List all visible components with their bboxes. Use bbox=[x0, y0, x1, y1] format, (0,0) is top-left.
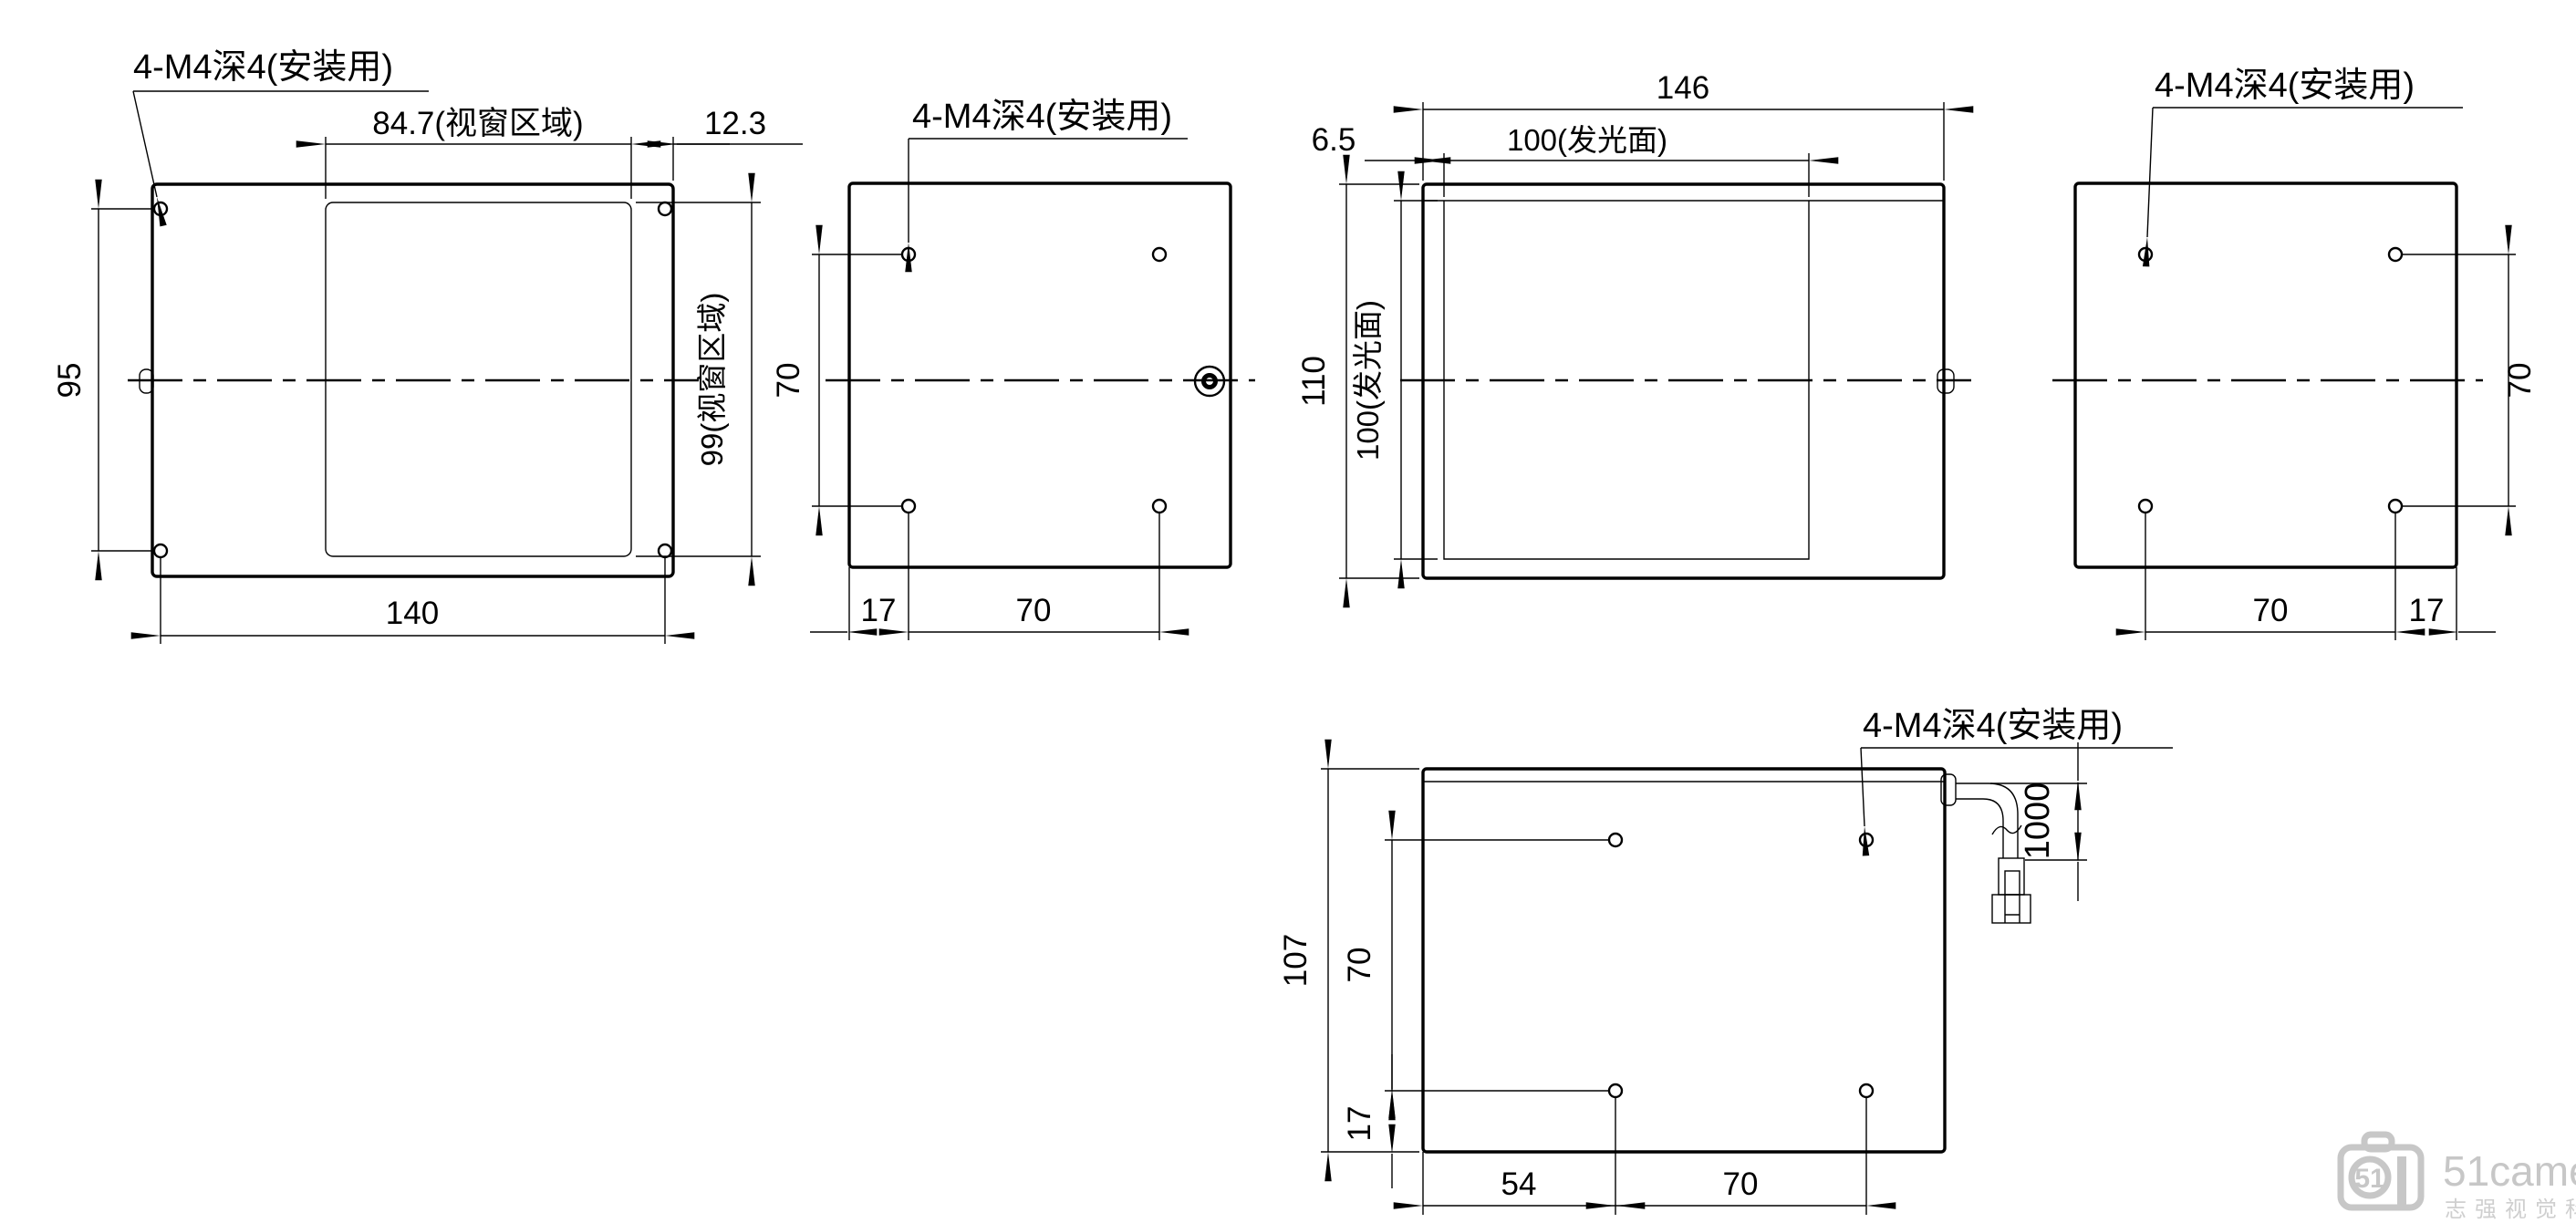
body-outline bbox=[1423, 769, 1945, 1152]
mounting-hole bbox=[1153, 500, 1166, 513]
dim-text-hole-spacing-v: 70 bbox=[2502, 363, 2538, 399]
mounting-hole bbox=[659, 202, 671, 215]
front-view-b: 146 100(发光面) 6.5 110 100(发光面) bbox=[1296, 70, 1971, 578]
mounting-hole bbox=[902, 500, 915, 513]
extension-lines bbox=[812, 139, 1188, 640]
extension-lines bbox=[1339, 102, 1944, 578]
dim-text-left: 54 bbox=[1501, 1166, 1537, 1202]
mounting-hole bbox=[1860, 834, 1873, 846]
dim-text-hole-spacing-h: 70 bbox=[1723, 1166, 1759, 1202]
front-view-a: 4-M4深4(安装用) 84.7(视窗区域) 12.3 95 140 99(视窗… bbox=[52, 48, 803, 644]
cable-connector bbox=[1992, 858, 2031, 923]
dim-text-hole-spacing: 95 bbox=[52, 363, 88, 399]
mounting-hole bbox=[1609, 1084, 1622, 1097]
mounting-hole bbox=[154, 202, 167, 215]
dim-text-width: 140 bbox=[386, 596, 439, 631]
body-outline bbox=[849, 183, 1231, 567]
connector-detail bbox=[2005, 895, 2020, 923]
connector-latch bbox=[2005, 871, 2020, 895]
connector-head bbox=[1992, 895, 2031, 923]
dim-text-cable-length: 1000 bbox=[2019, 783, 2057, 860]
dim-text-window-width: 84.7(视窗区域) bbox=[372, 106, 583, 141]
dim-text-glow-width: 100(发光面) bbox=[1507, 123, 1667, 157]
dim-text-margin: 12.3 bbox=[704, 106, 766, 141]
mounting-hole bbox=[2139, 248, 2152, 261]
mounting-hole bbox=[1153, 248, 1166, 261]
dim-text-window-height: 99(视窗区域) bbox=[695, 293, 729, 467]
mounting-hole bbox=[2139, 500, 2152, 513]
back-view-a: 4-M4深4(安装用) 70 17 70 bbox=[771, 98, 1255, 640]
dim-text-hole-spacing-v: 70 bbox=[1342, 948, 1377, 983]
dim-text-hole-spacing-h: 70 bbox=[2253, 593, 2289, 628]
mounting-hole bbox=[2389, 248, 2402, 261]
drawing-canvas: 4-M4深4(安装用) 84.7(视窗区域) 12.3 95 140 99(视窗… bbox=[0, 0, 2576, 1223]
dim-text-edge-b: 17 bbox=[1342, 1106, 1377, 1142]
dim-text-offset: 6.5 bbox=[1312, 122, 1356, 158]
dim-text-hole-spacing-v: 70 bbox=[771, 363, 806, 399]
leader-line bbox=[133, 91, 157, 197]
thread-note-label: 4-M4深4(安装用) bbox=[2155, 67, 2415, 105]
dim-text-height: 107 bbox=[1278, 934, 1314, 987]
mounting-hole bbox=[154, 544, 167, 557]
dim-text-hole-spacing-h: 70 bbox=[1016, 593, 1052, 628]
dim-text-glow-height: 100(发光面) bbox=[1351, 300, 1385, 461]
mounting-hole bbox=[2389, 500, 2402, 513]
thread-note-label: 4-M4深4(安装用) bbox=[133, 48, 393, 87]
body-outline bbox=[2075, 183, 2457, 567]
engineering-drawing-page: 4-M4深4(安装用) 84.7(视窗区域) 12.3 95 140 99(视窗… bbox=[0, 0, 2576, 1223]
watermark-subtitle: 志强视觉科技 bbox=[2445, 1197, 2576, 1222]
camera-logo-icon: 51 bbox=[2341, 1135, 2421, 1207]
watermark: 51 51camera 志强视觉科技 bbox=[2341, 1135, 2576, 1222]
extension-lines bbox=[2145, 108, 2516, 640]
bottom-view: 4-M4深4(安装用) 107 70 17 54 70 1000 bbox=[1278, 707, 2173, 1215]
watermark-brand: 51camera bbox=[2443, 1147, 2576, 1195]
mounting-hole bbox=[1860, 1084, 1873, 1097]
dim-text-height: 110 bbox=[1296, 356, 1332, 407]
mounting-hole bbox=[659, 544, 671, 557]
back-view-b: 4-M4深4(安装用) 70 70 17 bbox=[2052, 67, 2538, 640]
cable bbox=[1956, 783, 2018, 858]
dim-text-edge: 17 bbox=[861, 593, 897, 628]
dim-text-width: 146 bbox=[1657, 70, 1709, 106]
connector-body bbox=[1999, 858, 2024, 895]
leader-line bbox=[1861, 748, 1864, 826]
cable-break-symbol bbox=[1992, 825, 2021, 834]
logo-digits: 51 bbox=[2354, 1164, 2384, 1194]
thread-note-label: 4-M4深4(安装用) bbox=[1863, 707, 2123, 745]
dim-text-edge: 17 bbox=[2409, 593, 2445, 628]
leader-line bbox=[2147, 108, 2153, 237]
mounting-hole bbox=[1609, 834, 1622, 846]
thread-note-label: 4-M4深4(安装用) bbox=[912, 98, 1172, 136]
mounting-hole bbox=[902, 248, 915, 261]
